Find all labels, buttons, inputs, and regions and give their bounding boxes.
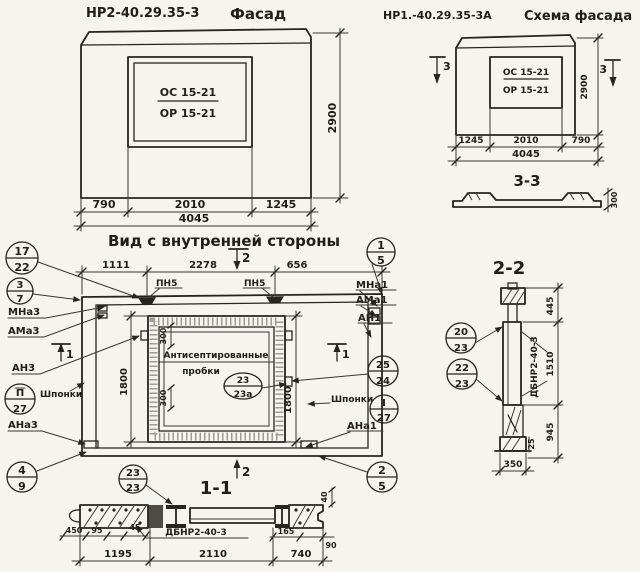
dim-350: 350 [504, 460, 523, 470]
dim-2900: 2900 [326, 102, 339, 133]
dim-2900: 2900 [580, 74, 590, 99]
dim-1510: 1510 [546, 351, 556, 376]
timber-block [148, 505, 163, 528]
callout-top: 23 [126, 468, 140, 479]
label-ama1: АМа1 [356, 295, 387, 306]
callout-bottom: 5 [378, 480, 386, 493]
dim-45: 45 [129, 523, 141, 532]
dim-1800: 1800 [283, 386, 294, 414]
inner-window-opening [164, 332, 269, 426]
left-channel [166, 505, 186, 528]
callout-22-23: 22 23 [447, 359, 502, 401]
callout-II-27: П 27 [5, 384, 35, 415]
scheme-mark-top: ОС 15-21 [503, 68, 549, 78]
section-mark-2-bottom: 2 [234, 459, 251, 479]
callout-top: 20 [454, 327, 468, 338]
bottom-block [503, 405, 523, 437]
note-line-1: Антисептированные [164, 351, 269, 361]
facade-mark-bottom: ОР 15-21 [160, 107, 216, 120]
dim-945: 945 [546, 423, 556, 442]
board-section [503, 322, 521, 405]
section-mark-3-right: 3 [599, 60, 620, 87]
section-mark-2-top: 2 [229, 249, 250, 270]
scheme-mark-bottom: ОР 15-21 [503, 86, 549, 96]
mark-2-label: 2 [242, 251, 250, 265]
facade-window-outer [128, 57, 252, 147]
window-frame-hatch [154, 322, 280, 437]
facade-view: НР2-40.29.35-3 Фасад ОС 15-21 ОР 15-21 7… [74, 5, 348, 231]
section-2-2-title: 2-2 [493, 258, 526, 279]
label-ama3: АМа3 [8, 326, 39, 337]
scheme-title: Схема фасада [524, 9, 632, 24]
dim-4045: 4045 [179, 212, 210, 225]
facade-bottom-dims: 790 2010 1245 4045 [74, 148, 318, 231]
callout-bottom: 23а [234, 390, 253, 400]
dim-1800: 1800 [119, 368, 130, 396]
section-mark-3-left: 3 [430, 57, 451, 84]
callout-bottom: 22 [14, 261, 29, 274]
section-1-1: 1-1 ДБНР2-40-3 [60, 478, 337, 566]
callout-top: 2 [378, 464, 386, 477]
dim-300: 300 [610, 191, 619, 208]
facade-height-dim: 2900 [313, 28, 348, 203]
callout-bottom: 24 [376, 376, 390, 387]
dim-740: 740 [291, 549, 312, 560]
right-channel [275, 505, 289, 528]
callout-top: П [16, 388, 24, 399]
dim-300: 300 [159, 327, 168, 344]
dim-165: 165 [278, 527, 295, 536]
dim-2010: 2010 [175, 198, 206, 211]
window-board [190, 508, 275, 523]
inner-window-mid [159, 327, 274, 431]
dim-1245: 1245 [266, 198, 297, 211]
callout-23-23: 23 23 [119, 465, 172, 504]
drawing-sheet: НР2-40.29.35-3 Фасад ОС 15-21 ОР 15-21 7… [0, 0, 640, 572]
dim-1195: 1195 [104, 549, 132, 560]
dim-40: 40 [320, 491, 329, 503]
mark-1-label: 1 [342, 348, 350, 361]
callout-top: 17 [14, 245, 29, 258]
weld-notch-1 [138, 297, 156, 304]
section-mark-1-right: 1 [328, 343, 350, 361]
callout-4-9: 4 9 [7, 452, 86, 493]
panel-drawing-svg: НР2-40.29.35-3 Фасад ОС 15-21 ОР 15-21 7… [0, 0, 640, 572]
section-1-1-title: 1-1 [200, 478, 233, 499]
dim-656: 656 [287, 260, 308, 271]
frame-tab [141, 331, 148, 340]
label-ana1: АНа1 [347, 421, 377, 432]
inner-top-dims: 1111 2278 656 [76, 260, 390, 295]
beam-label: ДБНР2-40-3 [165, 528, 227, 538]
label-an3: АН3 [12, 363, 35, 374]
facade-window-inner [134, 63, 246, 141]
weld-notch-2 [266, 296, 284, 303]
corner-plate [98, 306, 107, 311]
dim-4045: 4045 [512, 149, 540, 160]
callout-top: 25 [376, 360, 390, 371]
callout-top: 23 [237, 376, 250, 386]
scheme-code: НР1.-40.29.35-3А [383, 9, 492, 22]
section-3-3-profile [453, 193, 601, 207]
callout-bottom: 23 [454, 343, 468, 354]
sec11-small-dims: 450 95 45 [60, 523, 149, 540]
facade-panel-top-edge [81, 43, 311, 45]
label-an1: АН1 [358, 313, 381, 324]
callout-top: I [382, 398, 386, 409]
callout-top: 22 [455, 363, 469, 374]
callout-bottom: 7 [17, 294, 24, 305]
mark-3-label: 3 [443, 60, 451, 73]
label-shponki-right: Шпонки [331, 395, 373, 405]
callout-top: 3 [17, 280, 24, 291]
dim-2110: 2110 [199, 549, 227, 560]
dim-790: 790 [93, 198, 116, 211]
label-mna1: МНа1 [356, 280, 388, 291]
inner-window-outer [148, 316, 285, 442]
frame-tab [285, 331, 292, 340]
scheme-view: НР1.-40.29.35-3А Схема фасада ОС 15-21 О… [383, 9, 632, 212]
section-2-2: 2-2 ДБНР2-40-3 20 23 22 23 [446, 258, 563, 475]
dim-2010: 2010 [513, 136, 538, 146]
dim-95: 95 [91, 526, 103, 535]
facade-mark-top: ОС 15-21 [160, 86, 216, 99]
dim-2278: 2278 [189, 260, 217, 271]
inner-view: Вид с внутренней стороны Антисептированн… [52, 232, 390, 479]
callout-I-27: I 27 [370, 395, 398, 424]
section-3-3: 3-3 300 [453, 172, 619, 212]
callout-top: 1 [377, 239, 385, 252]
facade-title: Фасад [230, 5, 286, 23]
mark-1-label: 1 [66, 348, 74, 361]
scheme-window [490, 57, 562, 108]
callout-20-23: 20 23 [446, 323, 502, 354]
callout-bottom: 9 [18, 480, 26, 493]
label-ana3: АНа3 [8, 420, 38, 431]
callout-bottom: 5 [377, 254, 385, 267]
facade-code: НР2-40.29.35-3 [86, 6, 199, 21]
frame-tab [285, 377, 292, 386]
dim-445: 445 [546, 297, 556, 316]
scheme-panel-top-edge [456, 46, 575, 48]
dim-300: 300 [159, 389, 168, 406]
section-mark-1-left: 1 [52, 343, 74, 361]
callout-bottom: 23 [126, 483, 140, 494]
dim-300-plugs: 300 300 [159, 323, 174, 411]
inner-title: Вид с внутренней стороны [108, 232, 340, 250]
callout-bottom: 27 [377, 413, 391, 424]
dim-90: 90 [325, 541, 337, 550]
dim-25: 25 [527, 438, 536, 450]
callout-bottom: 27 [13, 404, 27, 415]
dim-790: 790 [572, 136, 591, 146]
scheme-panel-outline [456, 35, 575, 135]
callout-top: 4 [18, 464, 26, 477]
callout-2-5: 2 5 [319, 456, 397, 493]
callout-23-23a: 23 23а [224, 373, 286, 400]
callout-bottom: 23 [455, 379, 469, 390]
dim-1245: 1245 [458, 136, 483, 146]
scheme-bottom-dims: 1245 2010 790 4045 [448, 108, 604, 166]
section-3-3-title: 3-3 [513, 172, 540, 190]
lifting-loop [70, 510, 81, 522]
mark-3-label: 3 [599, 63, 607, 76]
dim-1111: 1111 [102, 260, 130, 271]
sec11-right-dims: 165 90 40 [270, 487, 337, 550]
label-shponki-left: Шпонки [40, 390, 82, 400]
note-line-2: пробки [182, 366, 220, 377]
label-mna3: МНа3 [8, 307, 40, 318]
callout-3-7: 3 7 [7, 278, 80, 305]
mark-2-label: 2 [242, 465, 250, 479]
beam-label-vertical: ДБНР2-40-3 [530, 336, 540, 398]
